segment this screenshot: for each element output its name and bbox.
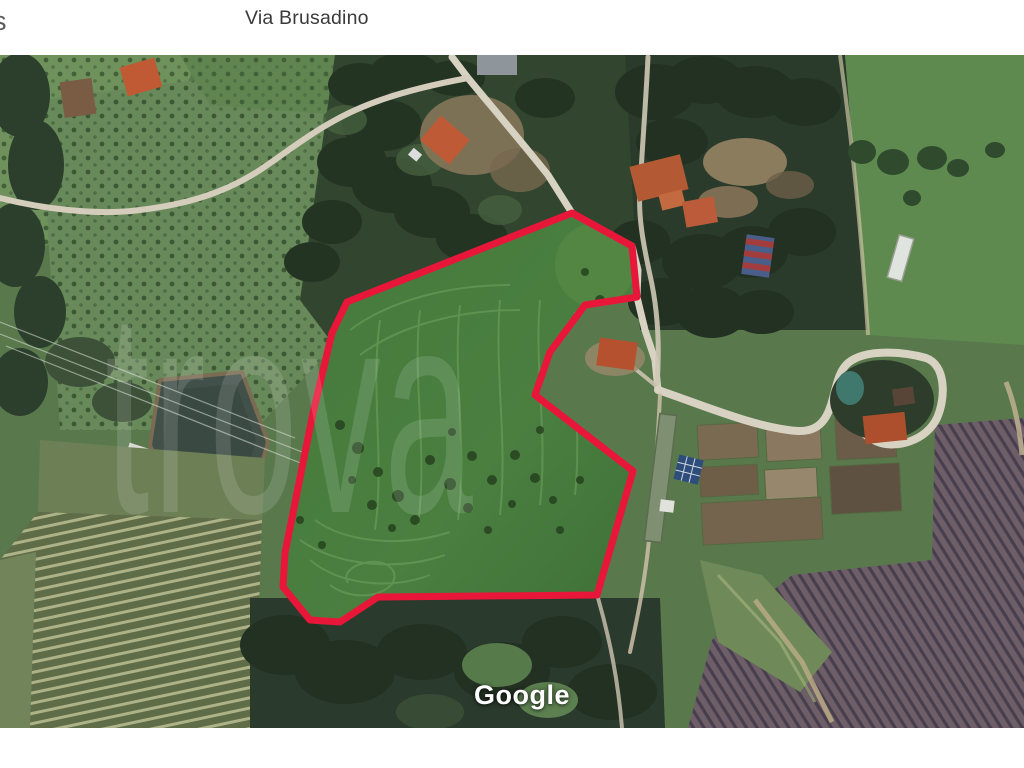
- satellite-map[interactable]: trova Google: [0, 55, 1024, 728]
- top-right-field: [840, 55, 1024, 345]
- header: s Via Brusadino: [0, 0, 1024, 55]
- screenshot-page: s Via Brusadino: [0, 0, 1024, 768]
- street-name-label: Via Brusadino: [245, 7, 369, 30]
- striped-greenhouse: [741, 234, 774, 278]
- vineyard-rows: [0, 440, 265, 728]
- footer: [0, 728, 1024, 768]
- satellite-imagery: [0, 55, 1024, 728]
- house-roof: [596, 337, 638, 370]
- pool: [836, 371, 864, 405]
- header-partial-text: s: [0, 6, 7, 37]
- field-plot: [60, 78, 97, 118]
- house-roof: [863, 412, 908, 444]
- house-roof: [682, 196, 718, 227]
- gray-building: [477, 55, 517, 75]
